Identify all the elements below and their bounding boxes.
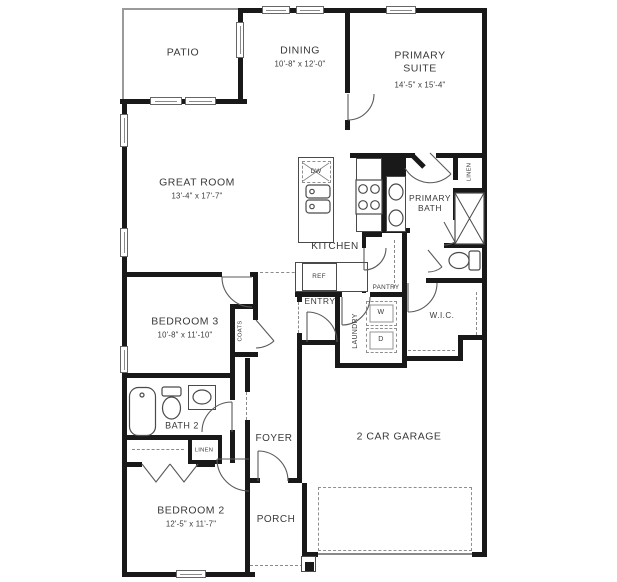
shower-x bbox=[455, 193, 484, 244]
appliance-label-dryer: D bbox=[378, 336, 384, 344]
wall-segment bbox=[230, 352, 258, 357]
garage-door-dashed bbox=[318, 487, 472, 551]
wall-segment bbox=[122, 373, 235, 378]
door-arc-bedroom3 bbox=[222, 277, 252, 307]
wall-segment bbox=[196, 462, 215, 467]
wall-segment bbox=[426, 278, 487, 283]
wall-segment bbox=[188, 440, 192, 462]
wall-segment bbox=[335, 363, 407, 368]
wall-segment bbox=[436, 153, 487, 158]
vanity-primary bbox=[386, 176, 406, 232]
cased-opening bbox=[298, 302, 299, 333]
window bbox=[120, 228, 128, 257]
closet-label-coats: COATS bbox=[238, 320, 245, 341]
toilet-bowl-primary bbox=[449, 253, 469, 269]
door-arc-coats bbox=[256, 320, 274, 348]
wall-segment bbox=[218, 440, 222, 462]
toilet-tank-primary bbox=[469, 251, 480, 270]
floor-plan: PATIO DINING 10'-8" x 12'-0" PRIMARY SUI… bbox=[0, 0, 617, 582]
wall-segment bbox=[345, 13, 350, 93]
window bbox=[120, 114, 128, 147]
room-dims-dining: 10'-8" x 12'-0" bbox=[275, 59, 326, 68]
door-arc-primary-suite bbox=[348, 94, 374, 120]
patio-wall-thin bbox=[122, 8, 243, 10]
wall-segment bbox=[297, 333, 302, 483]
room-label-foyer: FOYER bbox=[256, 433, 293, 445]
room-dims-great-room: 13'-4" x 17'-7" bbox=[172, 191, 223, 200]
wall-segment bbox=[245, 358, 250, 392]
window bbox=[236, 22, 244, 58]
room-label-laundry: LAUNDRY bbox=[352, 313, 360, 348]
room-label-great-room: GREAT ROOM bbox=[159, 177, 235, 190]
wall-segment bbox=[382, 155, 406, 178]
wall-segment bbox=[453, 156, 458, 180]
porch-column bbox=[305, 562, 314, 571]
wall-segment bbox=[230, 430, 235, 463]
room-label-pantry: PANTRY bbox=[373, 284, 400, 292]
closet-rod bbox=[408, 350, 455, 351]
wall-segment bbox=[458, 335, 487, 340]
wall-segment bbox=[302, 483, 307, 556]
wall-segment bbox=[288, 478, 302, 483]
porch-edge-dashed bbox=[250, 565, 303, 566]
wall-segment bbox=[253, 272, 258, 308]
wall-segment bbox=[335, 292, 340, 368]
room-label-bedroom3: BEDROOM 3 bbox=[151, 316, 219, 329]
kitchen-counter bbox=[356, 158, 382, 232]
window bbox=[262, 6, 290, 14]
cased-opening bbox=[260, 272, 300, 273]
bathtub bbox=[130, 388, 156, 436]
toilet-bowl-bath2 bbox=[163, 397, 181, 419]
appliance-label-dw: DW bbox=[310, 168, 321, 176]
wall-segment bbox=[402, 232, 407, 363]
door-arc-front-door bbox=[258, 451, 288, 481]
wall-segment bbox=[122, 435, 222, 440]
appliance-label-ref: REF bbox=[312, 273, 326, 281]
appliance-label-washer: W bbox=[378, 309, 385, 317]
room-label-bedroom2: BEDROOM 2 bbox=[157, 505, 225, 518]
cased-opening bbox=[246, 392, 247, 420]
room-label-garage: 2 CAR GARAGE bbox=[357, 431, 442, 444]
bifold-doors bbox=[142, 464, 198, 482]
wall-segment bbox=[297, 340, 340, 345]
patio-wall-thin bbox=[122, 8, 124, 101]
room-dims-bedroom2: 12'-5" x 11'-7" bbox=[166, 519, 216, 528]
wall-segment bbox=[245, 420, 250, 575]
room-label-patio: PATIO bbox=[167, 47, 199, 60]
room-label-primary-suite: PRIMARY SUITE bbox=[389, 49, 451, 74]
wall-segment bbox=[345, 120, 350, 130]
closet-rod bbox=[476, 292, 477, 335]
wall-segment bbox=[472, 552, 487, 557]
wall-segment bbox=[250, 478, 260, 483]
pantry-shelf-dashed bbox=[394, 240, 395, 288]
room-label-dining: DINING bbox=[280, 45, 320, 58]
garage-opening-line bbox=[318, 553, 472, 555]
room-dims-bedroom3: 10'-8" x 11'-10" bbox=[158, 330, 213, 339]
window bbox=[386, 6, 416, 14]
window bbox=[176, 570, 206, 578]
closet-label-linen-hall: LINEN bbox=[195, 448, 214, 455]
door-arc-garage-entry bbox=[307, 312, 337, 342]
room-dims-primary-suite: 14'-5" x 15'-4" bbox=[395, 80, 446, 89]
wall-segment bbox=[120, 99, 247, 104]
room-label-bath2: BATH 2 bbox=[165, 421, 199, 432]
room-label-wic: W.I.C. bbox=[430, 311, 455, 321]
wall-segment bbox=[402, 356, 463, 361]
window bbox=[296, 6, 324, 14]
shower bbox=[455, 193, 484, 244]
door-arc-wic bbox=[408, 283, 437, 312]
closet-rod bbox=[132, 449, 184, 450]
wall-segment bbox=[122, 99, 127, 577]
window bbox=[150, 97, 182, 105]
door-arc-shower bbox=[444, 222, 455, 245]
wall-segment bbox=[122, 462, 142, 467]
room-label-kitchen: KITCHEN bbox=[311, 241, 358, 253]
toilet-tank-bath2 bbox=[162, 387, 181, 396]
tub-drain bbox=[140, 393, 144, 397]
wall-segment bbox=[444, 243, 487, 248]
closet-label-linen-primary: LINEN bbox=[467, 163, 474, 182]
room-label-entry: ENTRY bbox=[304, 296, 335, 306]
vanity-bath2 bbox=[188, 385, 216, 410]
window bbox=[185, 97, 216, 105]
wall-segment bbox=[362, 237, 366, 248]
room-label-porch: PORCH bbox=[257, 514, 296, 526]
room-label-primary-bath: PRIMARY BATH bbox=[405, 193, 455, 213]
wall-segment bbox=[370, 292, 405, 297]
window bbox=[120, 346, 128, 373]
door-arc-toilet-room bbox=[428, 250, 442, 272]
wall-segment bbox=[253, 304, 258, 320]
wall-segment bbox=[122, 272, 222, 277]
